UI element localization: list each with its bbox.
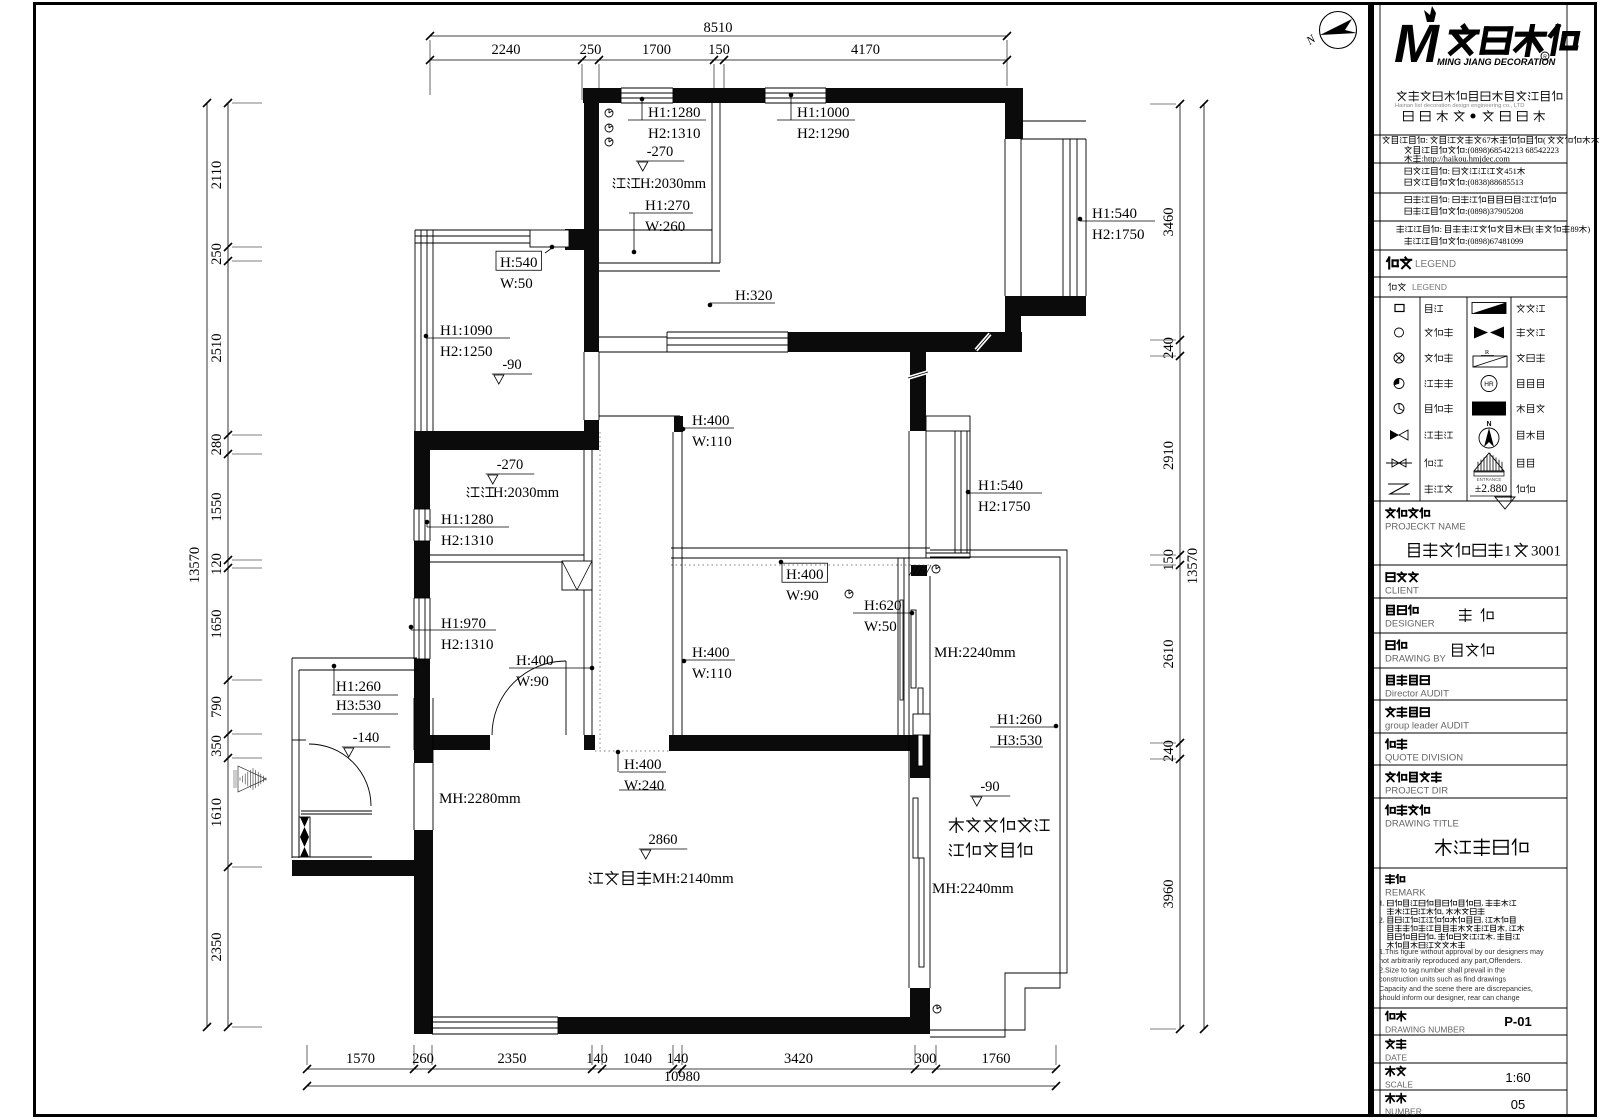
- svg-text:Hainan list decoration design: Hainan list decoration design engineerin…: [1395, 103, 1524, 109]
- svg-text:8510: 8510: [704, 20, 733, 36]
- svg-text:H:400: H:400: [516, 653, 554, 669]
- svg-text:10980: 10980: [664, 1069, 700, 1085]
- svg-text:H:400: H:400: [624, 757, 662, 773]
- svg-text::: :: [1448, 167, 1450, 176]
- svg-text:LEGEND: LEGEND: [1412, 282, 1447, 292]
- svg-text:W:110: W:110: [692, 666, 732, 682]
- svg-text:M: M: [1394, 14, 1440, 74]
- svg-text:LEGEND: LEGEND: [1415, 259, 1456, 270]
- svg-text:1: 1: [1504, 544, 1512, 560]
- svg-text:350: 350: [209, 735, 225, 757]
- svg-text:Director AUDIT: Director AUDIT: [1385, 689, 1449, 700]
- svg-text:1650: 1650: [209, 610, 225, 639]
- svg-text:MH:2140mm: MH:2140mm: [652, 871, 734, 887]
- svg-text:W:90: W:90: [786, 588, 819, 604]
- svg-text:group leader AUDIT: group leader AUDIT: [1385, 721, 1469, 732]
- svg-text:1760: 1760: [982, 1051, 1011, 1067]
- svg-text:PROJECT DIR: PROJECT DIR: [1385, 786, 1448, 797]
- svg-text:): ): [1587, 225, 1590, 234]
- svg-text:1:60: 1:60: [1505, 1070, 1530, 1085]
- svg-text:-90: -90: [502, 357, 521, 373]
- svg-text::: :: [1426, 136, 1428, 145]
- svg-text:H:400: H:400: [786, 567, 824, 583]
- svg-text:DRAWING TITLE: DRAWING TITLE: [1385, 819, 1459, 830]
- svg-text:PROJECKT NAME: PROJECKT NAME: [1385, 522, 1466, 533]
- svg-text:120: 120: [209, 553, 225, 575]
- svg-text::: :: [1448, 195, 1450, 204]
- svg-text:3001: 3001: [1531, 544, 1561, 560]
- svg-text:not arbitrarily reproduced any: not arbitrarily reproduced any part,Offe…: [1379, 956, 1522, 965]
- svg-text:H2:1750: H2:1750: [1092, 227, 1145, 243]
- svg-text:H2:1250: H2:1250: [440, 344, 493, 360]
- svg-text:MH:2240mm: MH:2240mm: [932, 881, 1014, 897]
- svg-text:W:240: W:240: [624, 778, 664, 794]
- svg-text:2510: 2510: [209, 334, 225, 363]
- svg-text:,: ,: [1493, 932, 1495, 941]
- svg-text:89: 89: [1570, 225, 1578, 234]
- svg-text:260: 260: [412, 1051, 434, 1067]
- svg-text:H2:1290: H2:1290: [797, 126, 850, 142]
- svg-text:250: 250: [580, 42, 602, 58]
- svg-text:QUOTE DIVISION: QUOTE DIVISION: [1385, 753, 1463, 764]
- svg-text:W:50: W:50: [864, 619, 897, 635]
- svg-text:H3:530: H3:530: [336, 698, 381, 714]
- svg-text:2.Size to tag number shall pre: 2.Size to tag number shall prevail in th…: [1379, 965, 1505, 974]
- svg-text:150: 150: [1161, 549, 1177, 571]
- svg-text:(: (: [1531, 225, 1534, 234]
- svg-text:H2:1310: H2:1310: [648, 126, 701, 142]
- svg-text:CLIENT: CLIENT: [1385, 586, 1419, 597]
- svg-text:DRAWING BY: DRAWING BY: [1385, 654, 1447, 665]
- svg-text:ENTRANCE: ENTRANCE: [1477, 477, 1502, 482]
- svg-text:H:620: H:620: [864, 598, 902, 614]
- svg-text:2110: 2110: [209, 161, 225, 189]
- svg-text:140: 140: [667, 1051, 689, 1067]
- svg-text:should inform our designer, re: should inform our designer, rear can cha…: [1379, 993, 1520, 1002]
- svg-text::: :: [1440, 225, 1442, 234]
- svg-text:150: 150: [708, 42, 730, 58]
- svg-text:,: ,: [1505, 924, 1507, 933]
- svg-text:N: N: [1303, 31, 1319, 48]
- svg-text:3960: 3960: [1161, 880, 1177, 909]
- svg-text::(0898)37905208: :(0898)37905208: [1465, 207, 1523, 216]
- svg-text:H2:1310: H2:1310: [441, 637, 494, 653]
- svg-text:NUMBER: NUMBER: [1385, 1106, 1422, 1116]
- svg-text:H:2030mm: H:2030mm: [493, 485, 560, 501]
- svg-text:(: (: [1543, 136, 1546, 145]
- svg-text:H1:270: H1:270: [645, 198, 690, 214]
- svg-text:MING JIANG DECORATION: MING JIANG DECORATION: [1437, 57, 1556, 67]
- svg-text:H:400: H:400: [692, 645, 730, 661]
- svg-text:DRAWING NUMBER: DRAWING NUMBER: [1385, 1024, 1465, 1034]
- svg-text:1700: 1700: [642, 42, 671, 58]
- svg-text:3420: 3420: [784, 1051, 813, 1067]
- svg-text:2350: 2350: [498, 1051, 527, 1067]
- svg-text:4170: 4170: [851, 42, 880, 58]
- svg-text:H2:1750: H2:1750: [978, 499, 1031, 515]
- svg-text:W:50: W:50: [500, 276, 533, 292]
- svg-text:3460: 3460: [1161, 208, 1177, 237]
- svg-text:P-01: P-01: [1504, 1014, 1531, 1029]
- svg-text:1610: 1610: [209, 798, 225, 827]
- svg-text::(0838)88685513: :(0838)88685513: [1465, 178, 1523, 187]
- svg-text:2240: 2240: [492, 42, 521, 58]
- svg-text:H1:1000: H1:1000: [797, 105, 850, 121]
- svg-text::http://haikou.hmjdec.com: :http://haikou.hmjdec.com: [1421, 154, 1510, 163]
- svg-text:H:2030mm: H:2030mm: [640, 176, 707, 192]
- svg-text:,: ,: [1481, 899, 1483, 908]
- svg-text:05: 05: [1511, 1097, 1525, 1112]
- svg-text:240: 240: [1161, 740, 1177, 762]
- svg-text:DATE: DATE: [1385, 1052, 1407, 1062]
- svg-text:67: 67: [1482, 136, 1490, 145]
- svg-text:,: ,: [1481, 915, 1483, 924]
- svg-text:13570: 13570: [187, 547, 203, 583]
- svg-text:2610: 2610: [1161, 640, 1177, 669]
- svg-text:-140: -140: [353, 730, 380, 746]
- svg-text:,: ,: [1442, 907, 1444, 916]
- svg-text:H1:1280: H1:1280: [441, 512, 494, 528]
- svg-text:W:260: W:260: [645, 219, 685, 235]
- svg-text:790: 790: [209, 696, 225, 718]
- svg-text:2350: 2350: [209, 933, 225, 962]
- svg-text:W:110: W:110: [692, 434, 732, 450]
- svg-text:H1:1090: H1:1090: [440, 323, 493, 339]
- svg-text:-270: -270: [647, 144, 674, 160]
- svg-text:H1:540: H1:540: [978, 478, 1023, 494]
- svg-text:13570: 13570: [1185, 548, 1201, 584]
- svg-text:±2.880: ±2.880: [1475, 483, 1507, 495]
- svg-text:,: ,: [1434, 932, 1436, 941]
- svg-text:1550: 1550: [209, 493, 225, 522]
- svg-text:REMARK: REMARK: [1385, 888, 1426, 899]
- svg-text:2860: 2860: [649, 832, 678, 848]
- svg-text:H2:1310: H2:1310: [441, 533, 494, 549]
- svg-text:Capacity and the scene there a: Capacity and the scene there are discrep…: [1379, 984, 1533, 993]
- svg-text:SCALE: SCALE: [1385, 1079, 1413, 1089]
- svg-text:H1:260: H1:260: [336, 679, 381, 695]
- svg-text:H1:1280: H1:1280: [648, 105, 701, 121]
- svg-text:2910: 2910: [1161, 441, 1177, 470]
- svg-text:H1:260: H1:260: [997, 712, 1042, 728]
- svg-text:construction units such as fin: construction units such as find drawings: [1379, 975, 1506, 984]
- svg-text:1.This figure without approval: 1.This figure without approval by our de…: [1379, 947, 1544, 956]
- svg-text:1040: 1040: [623, 1051, 652, 1067]
- svg-text:W:90: W:90: [516, 674, 549, 690]
- svg-text:H1:540: H1:540: [1092, 206, 1137, 222]
- svg-text::(0898)67481099: :(0898)67481099: [1465, 237, 1523, 246]
- svg-text:2.: 2.: [1379, 915, 1385, 924]
- svg-text:140: 140: [586, 1051, 608, 1067]
- svg-text:300: 300: [915, 1051, 937, 1067]
- svg-text:HR: HR: [1484, 381, 1494, 388]
- svg-text:H:320: H:320: [735, 288, 773, 304]
- svg-text:451: 451: [1504, 167, 1517, 176]
- svg-text:280: 280: [209, 434, 225, 456]
- svg-text:240: 240: [1161, 337, 1177, 359]
- svg-text:R: R: [1485, 349, 1490, 356]
- svg-text:DESIGNER: DESIGNER: [1385, 619, 1435, 630]
- svg-text:N: N: [1486, 421, 1491, 428]
- svg-text:250: 250: [209, 243, 225, 265]
- svg-text:MH:2280mm: MH:2280mm: [439, 791, 521, 807]
- svg-text:-270: -270: [497, 457, 524, 473]
- svg-text:H:540: H:540: [500, 255, 538, 271]
- svg-text:-90: -90: [980, 779, 999, 795]
- svg-text:1570: 1570: [346, 1051, 375, 1067]
- svg-text:MH:2240mm: MH:2240mm: [934, 645, 1016, 661]
- svg-text:H:400: H:400: [692, 413, 730, 429]
- svg-text:1.: 1.: [1379, 899, 1385, 908]
